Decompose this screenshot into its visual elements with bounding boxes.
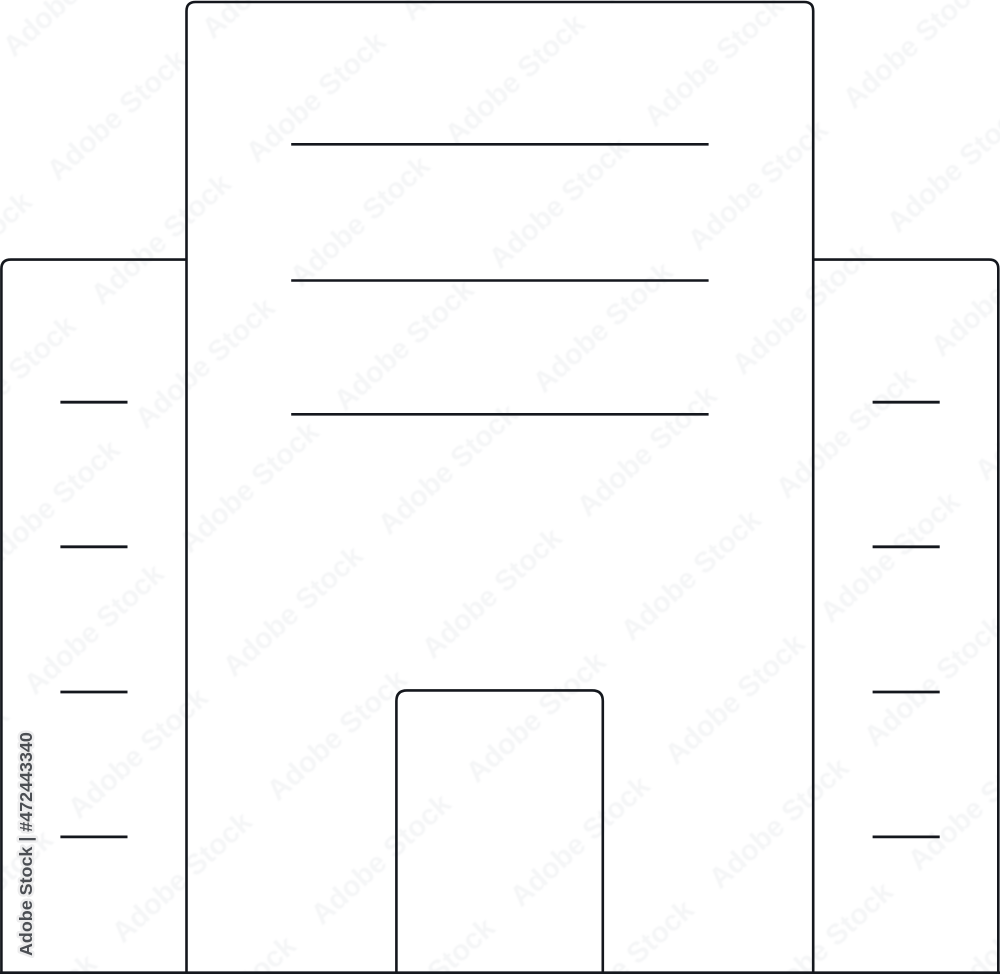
- svg-text:Adobe Stock | #472443340: Adobe Stock | #472443340: [16, 732, 36, 956]
